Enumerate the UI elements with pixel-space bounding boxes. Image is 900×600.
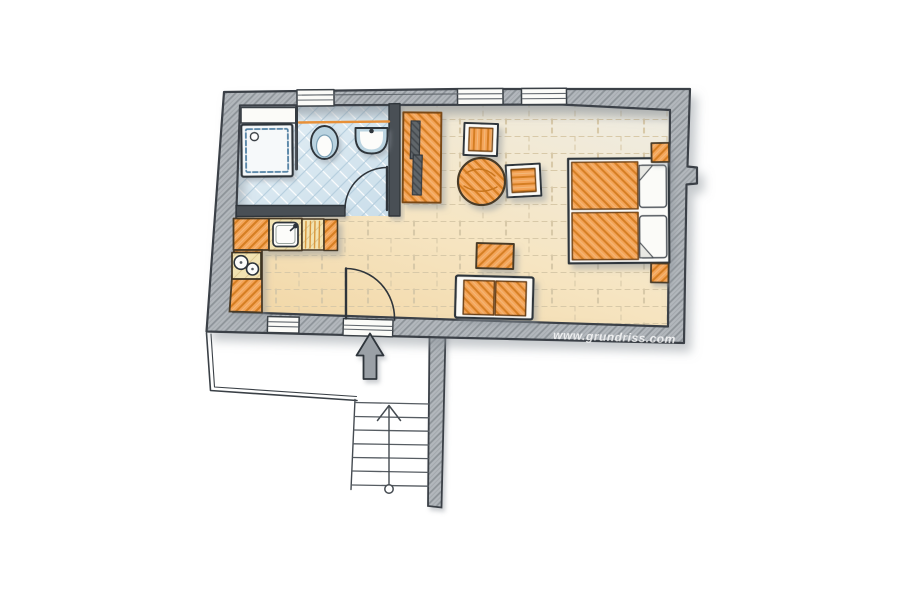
faucet-icon	[369, 129, 374, 134]
kitchen-counter-end	[324, 220, 338, 251]
exterior-area	[207, 333, 446, 508]
floor-plan: www.grundriss.com	[0, 0, 900, 600]
stair-tread	[355, 403, 429, 405]
bathroom-south-wall	[236, 206, 345, 217]
window-top-right	[521, 88, 566, 104]
cooktop	[232, 253, 261, 280]
sofa-cushion	[463, 280, 494, 315]
stair-start-circle	[385, 485, 393, 493]
washbasin	[356, 128, 388, 154]
floor-plan-canvas: www.grundriss.com	[0, 0, 900, 600]
landing-railing	[207, 333, 358, 401]
window-bottom	[267, 316, 299, 333]
coffee-table	[476, 243, 514, 269]
stair-side-wall	[428, 334, 446, 508]
sofa	[455, 275, 534, 319]
stair-tread	[354, 417, 429, 418]
entrance-threshold	[343, 319, 393, 337]
kitchen-counter-top	[234, 219, 270, 251]
nightstand-top	[651, 143, 669, 162]
double-bed	[568, 158, 669, 263]
stair-tread	[354, 430, 429, 431]
stair-tread	[353, 471, 429, 472]
stair-tread	[353, 458, 428, 459]
sofa-cushion	[495, 281, 526, 316]
bathroom-shelf	[241, 108, 297, 124]
bathroom-east-wall	[389, 104, 400, 216]
window-top-left	[297, 90, 334, 106]
nightstand-bottom	[651, 263, 669, 282]
bathroom-wall-rail	[299, 122, 389, 123]
tv-cabinet	[403, 112, 442, 202]
round-table	[458, 158, 505, 205]
watermark-text: www.grundriss.com	[553, 328, 676, 346]
toilet	[311, 126, 338, 159]
pillow	[640, 216, 667, 258]
kitchen-sink	[273, 223, 298, 247]
entrance-arrow-icon	[357, 334, 384, 380]
shower-drain-icon	[250, 133, 258, 141]
shower	[241, 124, 292, 176]
mattress	[572, 212, 638, 259]
mattress	[572, 162, 638, 209]
stair-left-edge	[351, 400, 355, 490]
stair-tread	[354, 444, 429, 445]
armchair-top	[463, 123, 498, 156]
pillow	[639, 165, 666, 207]
armchair-right	[506, 164, 542, 198]
